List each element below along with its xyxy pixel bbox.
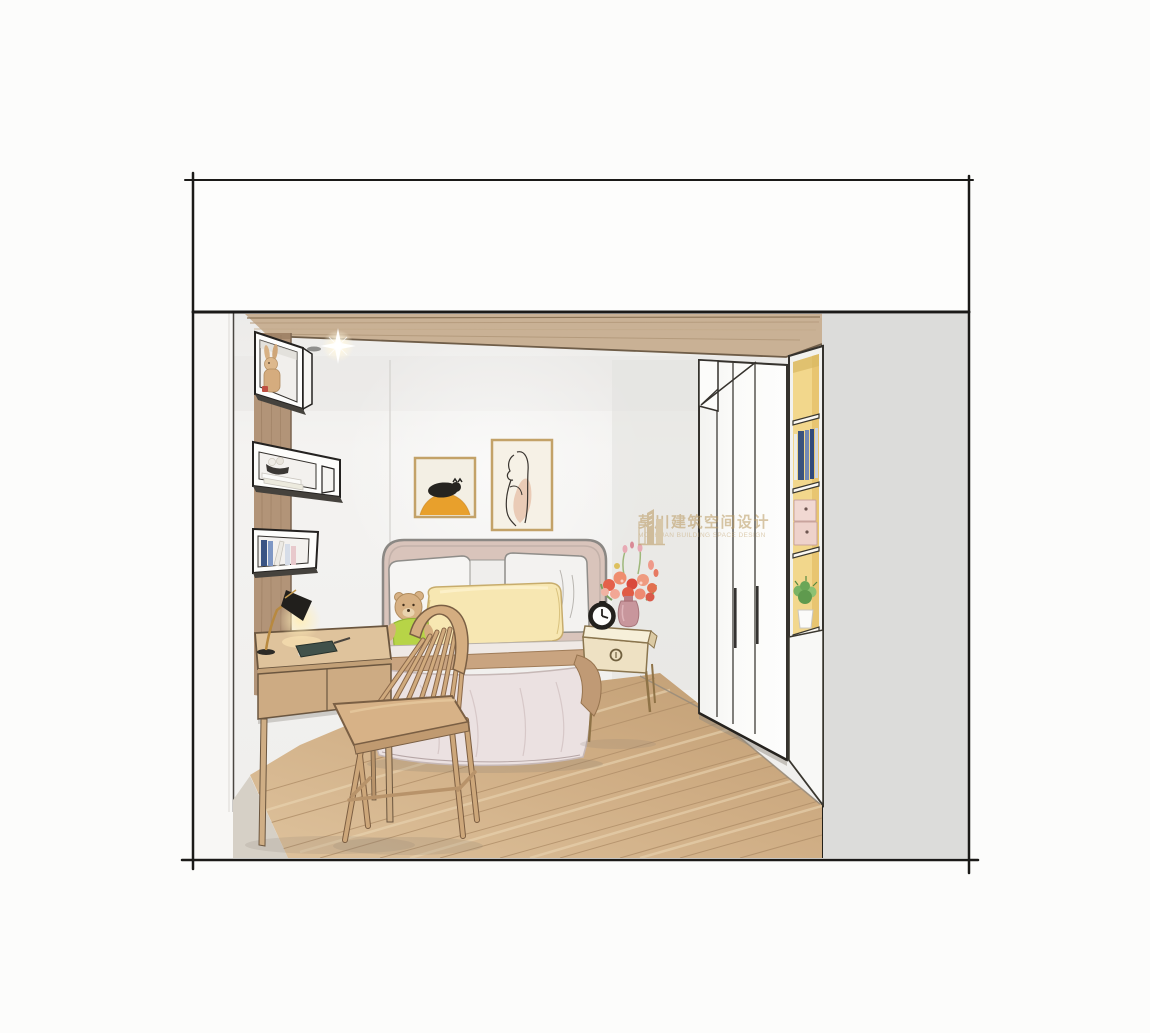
flower-vase (618, 596, 639, 627)
artwork-cat (415, 458, 475, 517)
bulkhead (194, 181, 968, 311)
right-side-panel (822, 314, 968, 858)
bedroom-rendering: 莫川建筑空间设计 MOCHUAN BUILDING SPACE DESIGN (0, 0, 1150, 1033)
door-handle (734, 588, 737, 648)
box-shelf-bottom (253, 529, 318, 578)
alarm-clock (591, 601, 614, 628)
door-handle (756, 586, 759, 644)
artwork-line-art (492, 440, 552, 530)
storage-boxes (794, 500, 817, 545)
scene-canvas (0, 0, 1150, 1033)
open-shelf-column (789, 346, 823, 805)
